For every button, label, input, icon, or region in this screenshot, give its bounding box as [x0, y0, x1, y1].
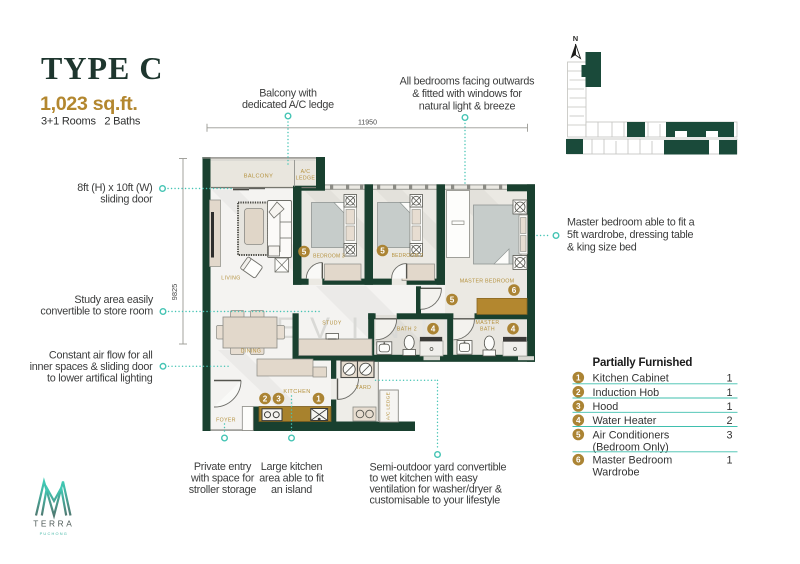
svg-text:Master Bedroom: Master Bedroom — [593, 455, 673, 467]
svg-text:BATH 2: BATH 2 — [397, 327, 417, 333]
svg-text:3: 3 — [576, 402, 581, 411]
svg-text:MASTER BEDROOM: MASTER BEDROOM — [460, 278, 515, 284]
svg-text:Induction Hob: Induction Hob — [593, 387, 660, 399]
svg-text:1: 1 — [726, 455, 732, 467]
svg-text:inner spaces & sliding door: inner spaces & sliding door — [30, 361, 154, 373]
svg-text:BALCONY: BALCONY — [244, 174, 274, 180]
svg-text:A/C LEDGE: A/C LEDGE — [386, 392, 392, 420]
svg-text:MASTER: MASTER — [475, 320, 499, 326]
svg-text:Private entry: Private entry — [194, 461, 252, 473]
svg-text:BATH: BATH — [480, 327, 495, 333]
svg-text:Constant air flow for all: Constant air flow for all — [49, 350, 153, 362]
svg-text:8ft (H) x 10ft (W): 8ft (H) x 10ft (W) — [77, 182, 152, 194]
svg-text:convertible to store room: convertible to store room — [40, 306, 153, 318]
svg-text:customisable to your lifestyle: customisable to your lifestyle — [370, 495, 501, 507]
svg-text:1: 1 — [316, 395, 321, 404]
svg-text:PUCHONG: PUCHONG — [40, 531, 68, 536]
svg-text:DINING: DINING — [241, 349, 262, 355]
svg-text:Water Heater: Water Heater — [593, 415, 657, 427]
svg-text:5: 5 — [576, 431, 581, 440]
svg-text:Kitchen Cabinet: Kitchen Cabinet — [593, 373, 669, 385]
svg-text:1: 1 — [726, 387, 732, 399]
svg-text:FOYER: FOYER — [216, 417, 236, 423]
svg-text:11950: 11950 — [358, 120, 377, 127]
svg-text:All bedrooms facing outwards: All bedrooms facing outwards — [400, 76, 535, 88]
svg-text:9825: 9825 — [170, 284, 179, 301]
svg-text:Master bedroom able to fit a: Master bedroom able to fit a — [567, 217, 695, 229]
svg-text:LIVING: LIVING — [221, 276, 240, 282]
svg-text:5: 5 — [380, 247, 385, 256]
svg-text:TERRA: TERRA — [33, 519, 74, 529]
svg-text:with space for: with space for — [190, 473, 255, 485]
svg-text:Large kitchen: Large kitchen — [261, 461, 323, 473]
svg-text:Air Conditioners: Air Conditioners — [593, 430, 670, 442]
svg-text:3+1 Rooms 2 Baths: 3+1 Rooms 2 Baths — [41, 116, 141, 128]
svg-text:Wardrobe: Wardrobe — [593, 466, 640, 478]
svg-text:STUDY: STUDY — [322, 321, 342, 327]
svg-text:2: 2 — [726, 415, 732, 427]
svg-text:stroller storage: stroller storage — [189, 484, 257, 496]
svg-text:Hood: Hood — [593, 401, 619, 413]
svg-text:3: 3 — [276, 395, 281, 404]
svg-text:LEDGE: LEDGE — [296, 176, 316, 182]
svg-text:1: 1 — [726, 401, 732, 413]
svg-text:natural light & breeze: natural light & breeze — [419, 101, 516, 113]
svg-text:an island: an island — [271, 484, 312, 496]
svg-text:5: 5 — [450, 296, 455, 305]
svg-text:BEDROOM 2: BEDROOM 2 — [392, 253, 424, 259]
svg-text:Balcony with: Balcony with — [259, 88, 317, 100]
svg-text:A/C: A/C — [301, 169, 311, 175]
svg-text:4: 4 — [511, 325, 516, 334]
svg-text:1: 1 — [576, 374, 581, 383]
svg-text:& king size bed: & king size bed — [567, 242, 637, 254]
svg-text:N: N — [573, 34, 578, 43]
svg-text:5: 5 — [302, 248, 307, 257]
svg-text:sliding door: sliding door — [100, 194, 153, 206]
svg-text:6: 6 — [512, 286, 517, 295]
svg-text:4: 4 — [431, 325, 436, 334]
svg-text:KITCHEN: KITCHEN — [283, 389, 310, 395]
svg-text:1: 1 — [726, 373, 732, 385]
svg-text:2: 2 — [263, 395, 268, 404]
svg-text:Study area easily: Study area easily — [74, 294, 153, 306]
svg-text:6: 6 — [576, 456, 581, 465]
svg-text:4: 4 — [576, 416, 581, 425]
svg-text:1,023 sq.ft.: 1,023 sq.ft. — [40, 93, 137, 115]
svg-text:& fitted with windows for: & fitted with windows for — [412, 88, 522, 100]
svg-text:to lower artifical lighting: to lower artifical lighting — [47, 373, 153, 385]
svg-text:3: 3 — [726, 430, 732, 442]
svg-text:2: 2 — [576, 388, 581, 397]
svg-text:TYPE C: TYPE C — [41, 50, 163, 86]
svg-text:YARD: YARD — [356, 385, 372, 391]
svg-text:dedicated A/C ledge: dedicated A/C ledge — [242, 99, 334, 111]
svg-text:BEDROOM 3: BEDROOM 3 — [313, 253, 345, 259]
svg-text:Partially Furnished: Partially Furnished — [593, 357, 693, 369]
svg-text:area able to fit: area able to fit — [259, 473, 324, 485]
svg-text:5ft wardrobe, dressing table: 5ft wardrobe, dressing table — [567, 229, 693, 241]
